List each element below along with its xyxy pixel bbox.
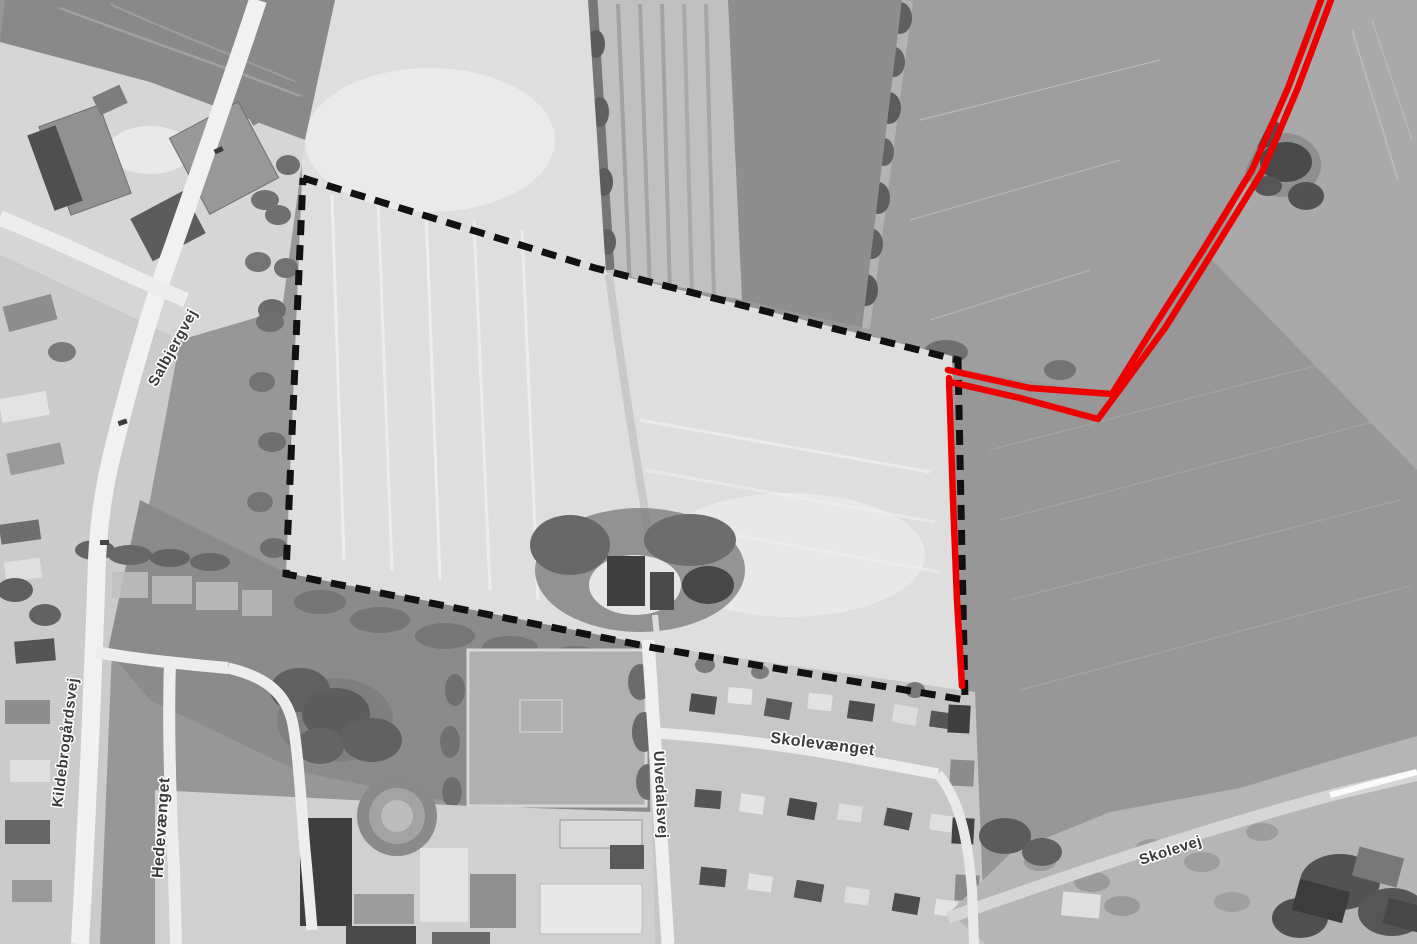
map-viewport: SalbjergvejKildebrogårdsvejHedevængetUlv…: [0, 0, 1417, 944]
plan-overlay-layer: SalbjergvejKildebrogårdsvejHedevængetUlv…: [0, 0, 1417, 944]
road-label-hedevanget: Hedevænget: [150, 777, 174, 879]
site-boundary-dashed-line: [286, 178, 965, 700]
road-label-kildebrogardsvej: Kildebrogårdsvej: [49, 677, 82, 809]
road-label-skolevanget: Skolevænget: [769, 730, 876, 760]
road-label-skolevej: Skolevej: [1137, 833, 1204, 869]
red-boundary-line-1: [948, 0, 1321, 394]
red-boundary-line-2: [950, 0, 1331, 419]
road-label-ulvedalsvej: Ulvedalsvej: [650, 750, 672, 839]
road-label-salbjergvej: Salbjergvej: [145, 306, 201, 389]
